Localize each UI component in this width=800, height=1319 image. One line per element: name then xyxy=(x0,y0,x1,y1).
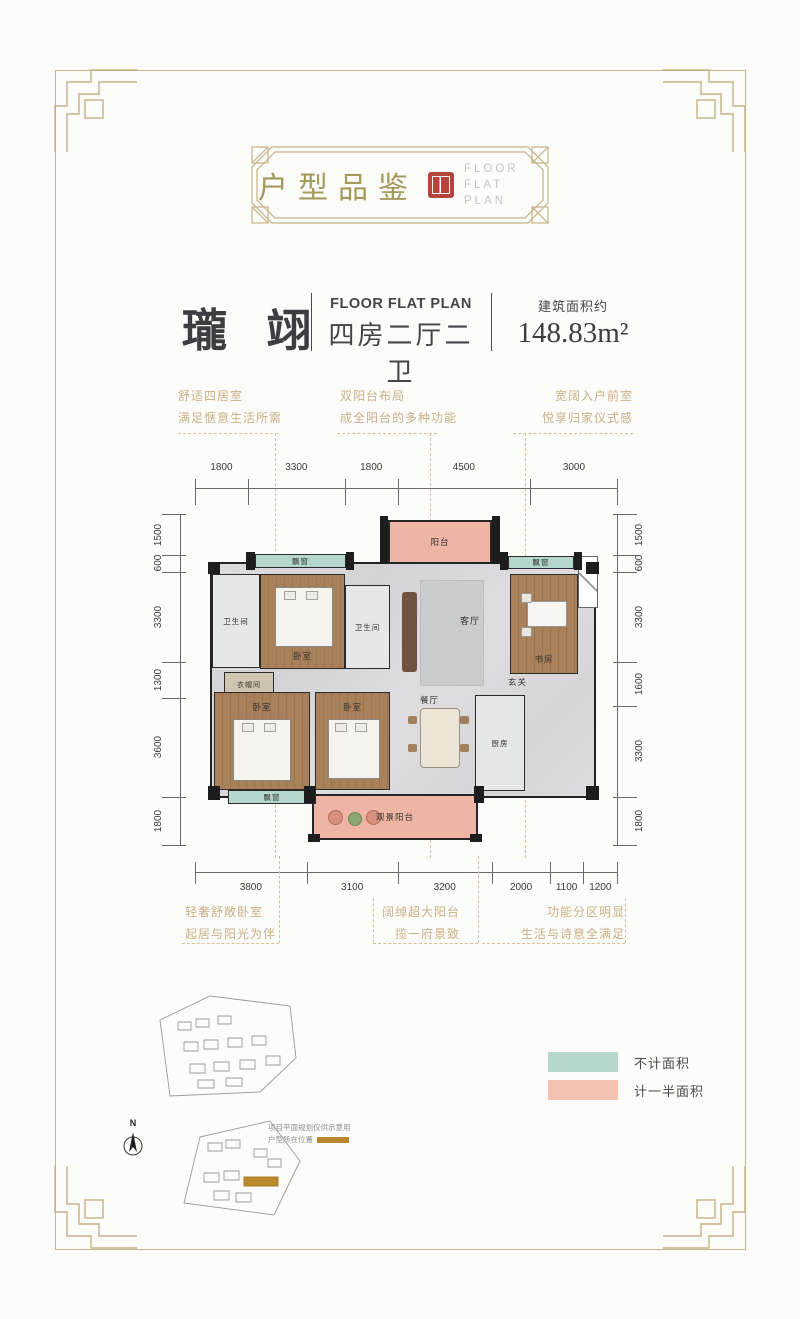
legend-row-excluded: 不计面积 xyxy=(548,1052,704,1072)
annotation-dash xyxy=(178,433,278,434)
project-name: 瓏 翊 xyxy=(182,294,325,359)
annotation-dash xyxy=(279,856,280,943)
layout-summary-en: FLOOR FLAT PLAN xyxy=(318,296,484,312)
title-divider xyxy=(311,293,312,351)
room-balcony-bottom: 观景阳台 xyxy=(312,794,478,840)
annotation-dash xyxy=(337,433,437,434)
layout-summary-cn: 四房二厅二卫 xyxy=(318,315,484,389)
unit-location-bar-icon xyxy=(317,1137,349,1143)
room-living-label: 客厅 xyxy=(460,614,480,627)
annotation-top-1: 舒适四居室满足惬意生活所需 xyxy=(178,386,318,429)
corner-ornament-icon xyxy=(663,1166,753,1256)
legend-row-half: 计一半面积 xyxy=(548,1080,704,1100)
dimensions-left: 15006003300130036001800 xyxy=(154,514,186,846)
badge-subtitle: FLOOR FLATPLAN xyxy=(464,161,552,209)
site-plan-upper xyxy=(138,988,303,1113)
area-legend: 不计面积 计一半面积 xyxy=(548,1052,704,1108)
floor-plan-poster: 户型品鉴 FLOOR FLATPLAN 瓏 翊 FLOOR FLAT PLAN … xyxy=(0,0,800,1319)
annotation-dash xyxy=(625,898,626,943)
annotation-bottom-2: 阔绰超大阳台揽一府景致 xyxy=(375,902,460,945)
dining-chair xyxy=(408,744,417,752)
bay-window-top-left: 飘窗 xyxy=(255,554,346,568)
badge-title: 户型品鉴 xyxy=(248,163,418,207)
annotation-dash xyxy=(373,943,478,944)
annotation-top-3: 宽阔入户前室悦享归家仪式感 xyxy=(503,386,633,429)
site-note: 项目平面规划仅供示意用 户型所在位置 xyxy=(268,1122,351,1146)
area-value: 148.83m² xyxy=(498,317,648,350)
title-divider xyxy=(491,293,492,351)
site-note-line2: 户型所在位置 xyxy=(268,1134,351,1146)
legend-swatch-pink xyxy=(548,1080,618,1100)
annotation-dash xyxy=(478,856,479,943)
living-rug xyxy=(420,580,484,686)
dining-table xyxy=(420,708,460,768)
room-entry-label: 玄关 xyxy=(508,676,527,688)
layout-summary: FLOOR FLAT PLAN 四房二厅二卫 xyxy=(318,296,484,389)
sofa xyxy=(402,592,417,672)
area-label: 建筑面积约 xyxy=(498,296,648,315)
room-dining-label: 餐厅 xyxy=(420,694,439,706)
dimensions-right: 15006003300160033001800 xyxy=(612,514,644,846)
annotation-dash xyxy=(513,433,633,434)
room-bedroom-bottom-mid: 卧室 xyxy=(315,692,390,790)
dining-chair xyxy=(460,744,469,752)
north-arrow: N xyxy=(121,1118,145,1167)
annotation-bottom-1: 轻奢舒敞卧室起居与阳光为伴 xyxy=(185,902,305,945)
bay-window-top-right: 飘窗 xyxy=(508,556,574,569)
seal-icon xyxy=(428,172,454,198)
annotation-dash xyxy=(482,943,625,944)
room-kitchen: 厨房 xyxy=(475,695,525,791)
corner-ornament-icon xyxy=(663,62,753,152)
room-bedroom-bottom-left: 卧室 xyxy=(214,692,310,790)
dining-chair xyxy=(460,716,469,724)
dimensions-top: 18003300180045003000 xyxy=(195,462,618,506)
area-block: 建筑面积约 148.83m² xyxy=(498,296,648,350)
legend-swatch-teal xyxy=(548,1052,618,1072)
site-note-line1: 项目平面规划仅供示意用 xyxy=(268,1122,351,1134)
annotation-dash xyxy=(182,943,279,944)
dimensions-bottom: 380031003200200011001200 xyxy=(195,860,618,904)
corner-ornament-icon xyxy=(47,1166,137,1256)
room-balcony-top: 阳台 xyxy=(388,520,492,564)
room-bedroom-top-left: 卧室 xyxy=(260,574,345,669)
header-badge: 户型品鉴 FLOOR FLATPLAN xyxy=(248,143,552,227)
corner-ornament-icon xyxy=(47,62,137,152)
room-bath-mid: 卫生间 xyxy=(345,585,390,669)
room-study: 书房 xyxy=(510,574,578,674)
annotation-dash xyxy=(373,898,374,943)
floor-plan: 阳台 观景阳台 飘窗 飘窗 飘窗 卫生间 卫生间 厨房 衣帽间 xyxy=(208,508,600,852)
room-bath-left: 卫生间 xyxy=(212,574,260,668)
annotation-top-2: 双阳台布局成全阳台的多种功能 xyxy=(340,386,490,429)
dining-chair xyxy=(408,716,417,724)
bay-window-bottom-left: 飘窗 xyxy=(228,790,316,804)
annotation-bottom-3: 功能分区明显生活与诗意全满足 xyxy=(500,902,625,945)
